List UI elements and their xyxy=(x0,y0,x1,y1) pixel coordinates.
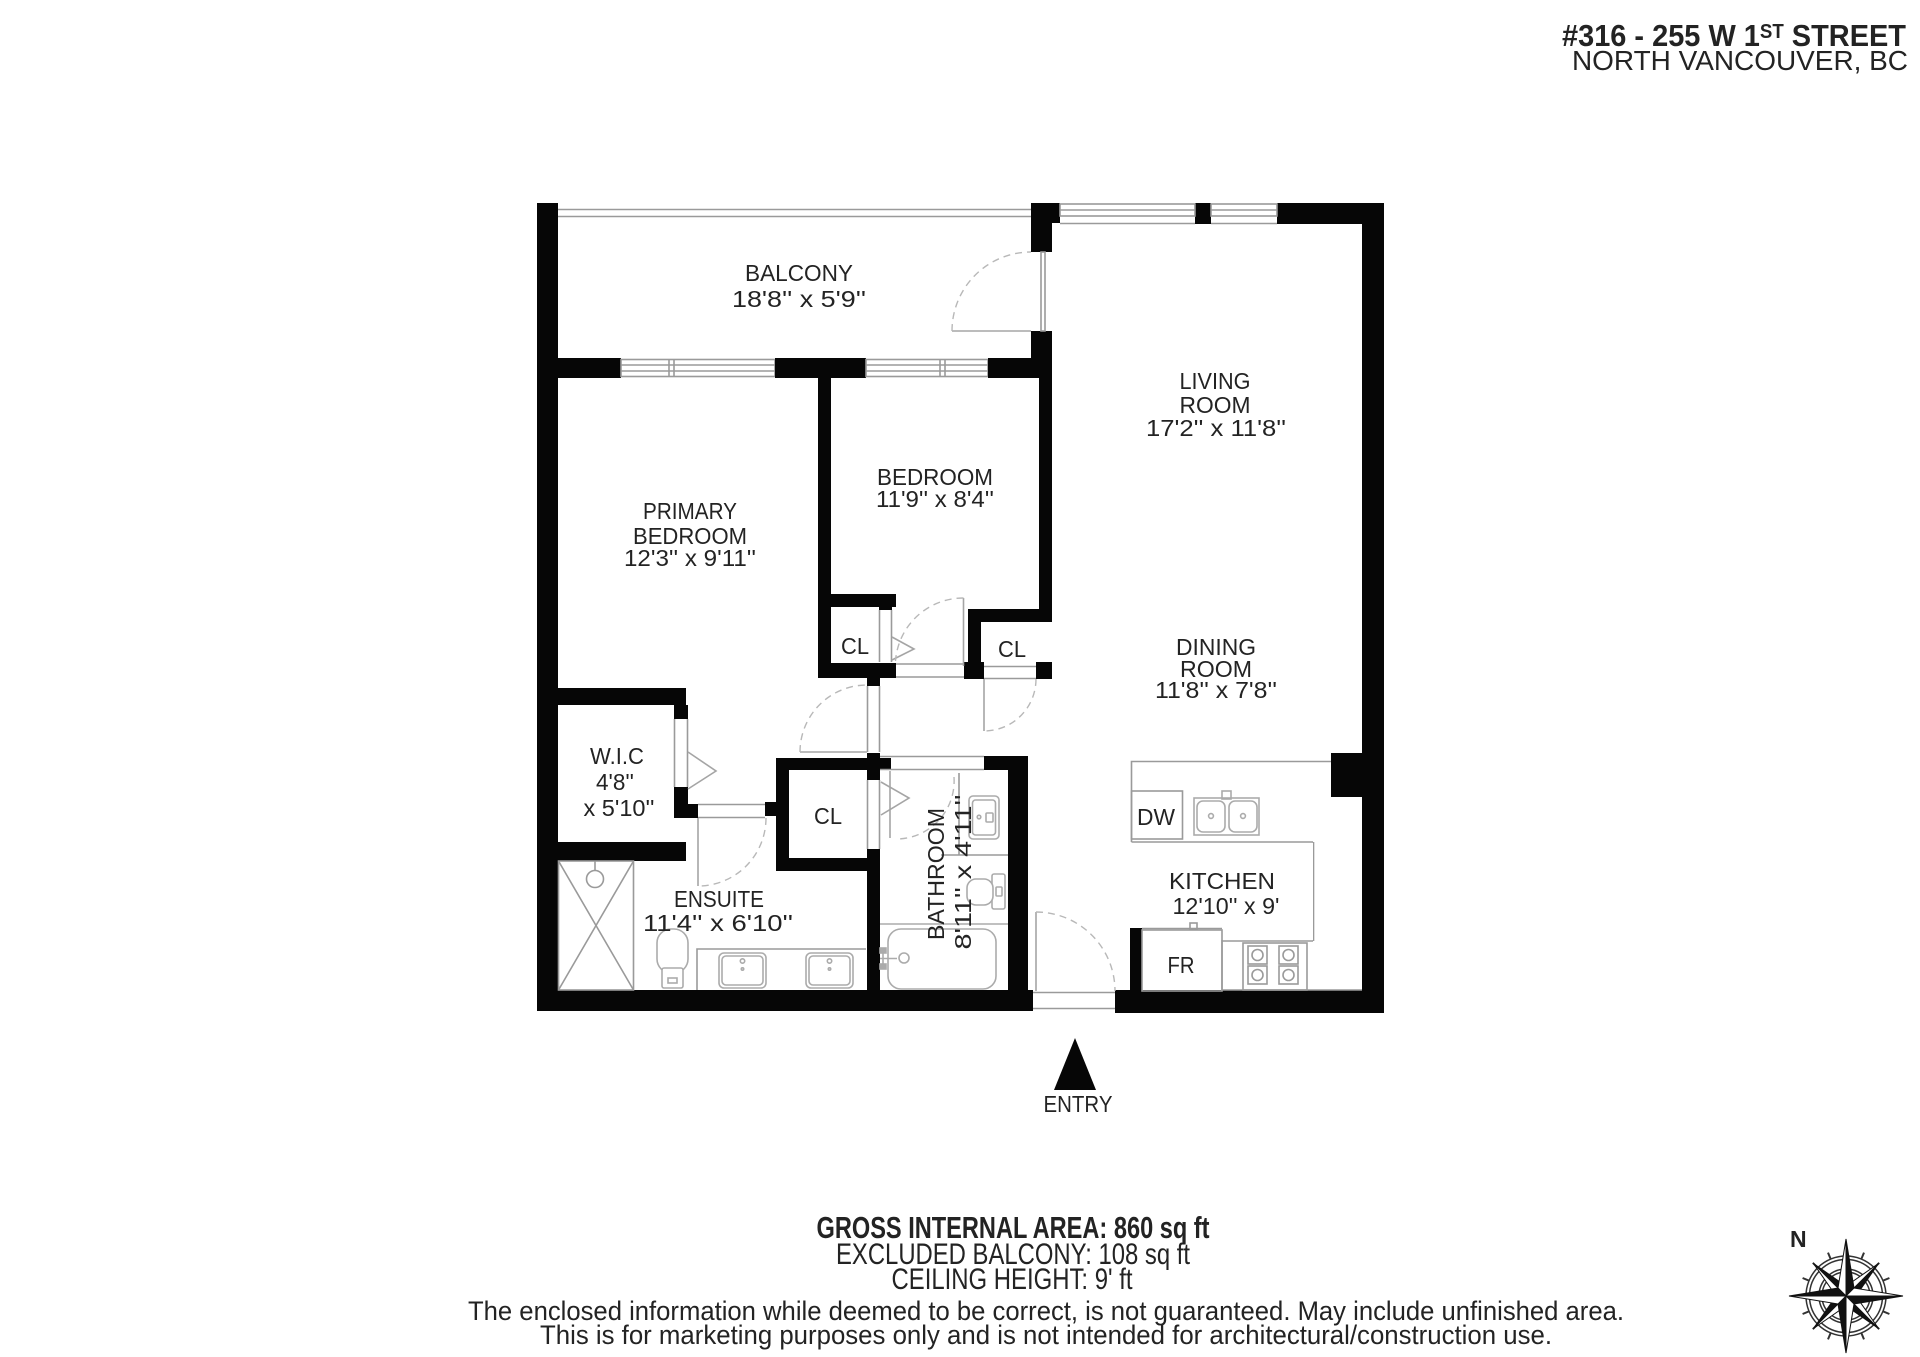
svg-text:CEILING HEIGHT: 9' ft: CEILING HEIGHT: 9' ft xyxy=(892,1263,1134,1296)
svg-text:FR: FR xyxy=(1168,952,1195,978)
svg-text:PRIMARY: PRIMARY xyxy=(643,498,737,524)
svg-text:KITCHEN: KITCHEN xyxy=(1169,868,1275,894)
svg-text:11'8'' x 7'8'': 11'8'' x 7'8'' xyxy=(1155,677,1277,703)
svg-text:CL: CL xyxy=(841,633,869,659)
svg-text:This is for marketing purposes: This is for marketing purposes only and … xyxy=(540,1320,1552,1350)
svg-text:LIVING: LIVING xyxy=(1180,368,1251,394)
svg-text:12'3'' x 9'11'': 12'3'' x 9'11'' xyxy=(624,545,756,571)
svg-text:BATHROOM: BATHROOM xyxy=(923,808,949,940)
svg-text:18'8'' x 5'9'': 18'8'' x 5'9'' xyxy=(732,286,866,312)
svg-text:8'11'' x 4'11'': 8'11'' x 4'11'' xyxy=(950,795,976,950)
svg-text:17'2'' x 11'8'': 17'2'' x 11'8'' xyxy=(1146,415,1286,441)
svg-text:DW: DW xyxy=(1137,804,1175,830)
svg-text:11'4'' x 6'10'': 11'4'' x 6'10'' xyxy=(643,910,793,936)
svg-text:CL: CL xyxy=(998,636,1026,662)
svg-text:W.I.C: W.I.C xyxy=(590,743,644,769)
svg-text:11'9'' x 8'4'': 11'9'' x 8'4'' xyxy=(876,486,994,512)
svg-text:12'10'' x 9': 12'10'' x 9' xyxy=(1173,893,1280,919)
svg-text:4'8'': 4'8'' xyxy=(596,769,634,795)
svg-text:x 5'10'': x 5'10'' xyxy=(584,795,655,821)
svg-text:ENSUITE: ENSUITE xyxy=(674,886,764,912)
svg-text:N: N xyxy=(1790,1226,1807,1252)
svg-text:ENTRY: ENTRY xyxy=(1044,1091,1113,1117)
svg-text:CL: CL xyxy=(814,803,842,829)
svg-text:BALCONY: BALCONY xyxy=(745,260,853,286)
svg-text:NORTH VANCOUVER, BC: NORTH VANCOUVER, BC xyxy=(1572,45,1908,76)
